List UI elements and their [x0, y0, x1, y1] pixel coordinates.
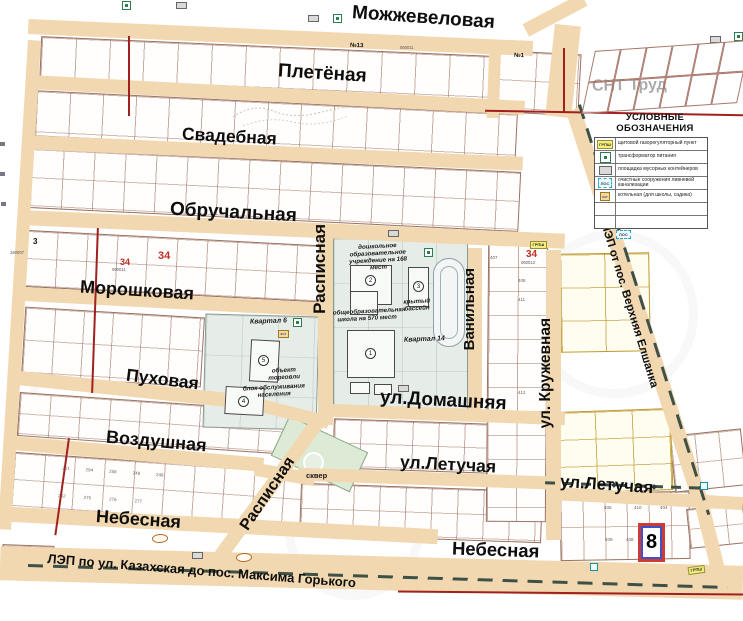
legend-row: ГРПШ щитовой газорегуляторный пункт — [595, 138, 707, 151]
boiler-icon: кот — [278, 330, 289, 338]
red-utility-line — [128, 36, 130, 116]
kindergarten-label: дошкольное образовательное учреждение на… — [344, 242, 411, 273]
waste-container-icon — [308, 15, 319, 22]
legend-empty-cell — [595, 216, 616, 228]
cadastral-zone: 3 — [33, 238, 37, 246]
transformer-icon — [700, 482, 708, 490]
red-utility-line — [563, 48, 565, 113]
plot-13-label: №13 — [350, 43, 364, 49]
plot-number: 258 — [109, 470, 117, 475]
plot-number: 408 — [626, 538, 634, 543]
plot-number: 407 — [490, 256, 498, 261]
plot-number: 411 — [518, 298, 525, 303]
plot-number: 408 — [518, 279, 526, 284]
waste-container-icon — [176, 2, 187, 9]
transformer-icon — [424, 248, 433, 257]
cadastral-map: 2 3 1 5 4 Можжевеловая Плетёная Свадебна… — [0, 0, 743, 621]
plot-number: 410 — [634, 506, 642, 511]
plot-number: 409 — [605, 538, 613, 543]
legend-empty-label — [616, 216, 707, 228]
legend-row-empty — [595, 216, 707, 228]
snt-trud-plots — [581, 40, 743, 114]
transformer-icon — [333, 14, 342, 23]
building-number-5: 5 — [258, 355, 269, 366]
building-number-1: 1 — [365, 348, 376, 359]
plot-number: 248 — [156, 473, 164, 478]
legend-label: очистные сооружения ливневой канализации — [616, 177, 707, 189]
street-label-kruzhevnaya: ул. Кружевная — [538, 318, 554, 428]
legend-row: трансформатор питания — [595, 151, 707, 164]
legend-title: УСЛОВНЫЕ ОБОЗНАЧЕНИЯ — [588, 112, 722, 134]
legend-table: ГРПШ щитовой газорегуляторный пункт тран… — [594, 137, 708, 229]
selected-plot-number: 8 — [646, 531, 657, 554]
school-outbuilding — [350, 382, 370, 394]
legend-row: ЛОС очистные сооружения ливневой канализ… — [595, 177, 707, 190]
legend-label: площадка мусорных контейнеров — [616, 164, 707, 176]
edge-tick — [0, 142, 5, 146]
pool-label: крытый бассейн — [394, 298, 441, 314]
park-label: сквер — [306, 472, 327, 480]
kvartal-14-label: Квартал 14 — [404, 335, 445, 344]
street-label-nebesnaya-bottom: Небесная — [452, 539, 540, 561]
kvartal-6-label: Квартал 6 — [250, 317, 287, 326]
selected-plot-marker: 8 — [638, 523, 665, 562]
storm-treatment-icon: ЛОС — [616, 230, 631, 239]
waste-container-icon — [595, 164, 616, 176]
plot-number: 275 — [83, 496, 91, 501]
street-label-nebesnaya-left: Небесная — [95, 507, 181, 531]
plot-1-label: №1 — [514, 53, 524, 59]
legend-row: площадка мусорных контейнеров — [595, 164, 707, 177]
map-legend: УСЛОВНЫЕ ОБОЗНАЧЕНИЯ ГРПШ щитовой газоре… — [588, 112, 722, 229]
street-label-vanilnaya: Ванильная — [462, 268, 477, 350]
strip-code-label: 060011 — [400, 46, 414, 50]
cadastral-quarter-left-small: 34 — [120, 258, 130, 267]
legend-label: щитовой газорегуляторный пункт — [616, 138, 707, 150]
plot-number: 404 — [660, 506, 668, 511]
legend-empty-cell — [595, 203, 616, 215]
well-icon — [152, 534, 168, 544]
transformer-icon — [122, 1, 131, 10]
cadastral-quarter-right-code: 060013 — [521, 261, 535, 265]
plot-number: 261 — [62, 466, 70, 471]
legend-label: котельная (для школы, садика) — [616, 190, 707, 202]
cadastral-quarter-left-code: 060011 — [112, 268, 126, 272]
plot-number: 276 — [109, 498, 117, 503]
legend-row-empty — [595, 203, 707, 216]
plot-number: 277 — [134, 499, 142, 504]
street-label-raspisnaya-vertical: Расписная — [311, 224, 328, 314]
gas-point-icon: ГРПШ — [595, 138, 616, 150]
transformer-icon — [293, 318, 302, 327]
edge-tick — [1, 202, 6, 206]
legend-empty-label — [616, 203, 707, 215]
building-number-3: 3 — [413, 281, 424, 292]
building-number-2: 2 — [365, 275, 376, 286]
transformer-icon — [590, 563, 598, 571]
boiler-icon: кот — [595, 190, 616, 202]
legend-row: кот котельная (для школы, садика) — [595, 190, 707, 203]
waste-container-icon — [192, 552, 203, 559]
plot-number: 412 — [518, 391, 526, 396]
plot-number: 249 — [132, 471, 140, 476]
plot-number: 262 — [58, 494, 66, 499]
cadastral-quarter-right: 34 — [526, 250, 537, 260]
edge-tick — [0, 172, 5, 176]
plot-number: 294 — [85, 468, 93, 473]
storm-treatment-icon: ЛОС — [595, 177, 616, 189]
cadastral-zone-code: 160007 — [10, 251, 24, 255]
waste-container-icon — [388, 230, 399, 237]
street-label-pletyonaya: Плетёная — [278, 61, 368, 85]
transformer-icon — [595, 151, 616, 163]
street-label-mozhzhevelovaya: Можжевеловая — [352, 3, 496, 32]
legend-label: трансформатор питания — [616, 151, 707, 163]
stadium-field — [440, 266, 458, 339]
gas-point-icon: ГРПШ — [530, 241, 547, 249]
trade-object-label: объект торговли — [262, 366, 307, 382]
waste-container-icon — [398, 385, 409, 392]
cadastral-quarter-left-big: 34 — [158, 251, 170, 262]
plot-number: 405 — [604, 506, 612, 511]
